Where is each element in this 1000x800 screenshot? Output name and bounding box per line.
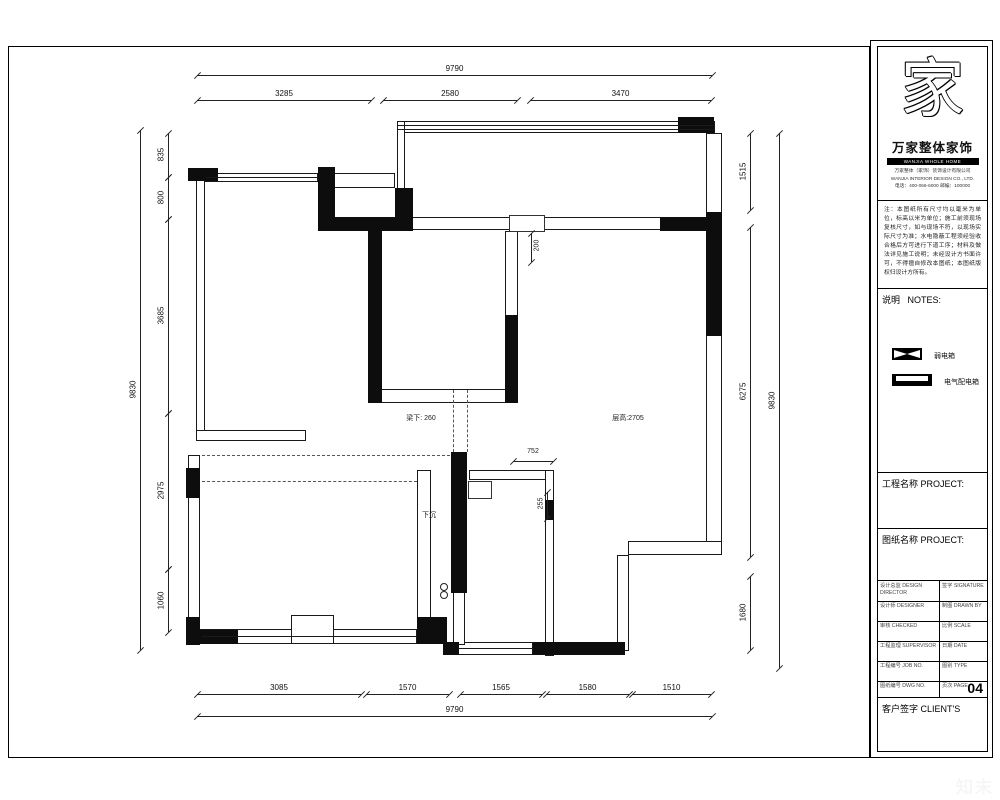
table-row: 设计总监 DESIGN DIRECTOR签字 SIGNATURE [878,581,987,602]
dimension-line [168,413,169,569]
dimension-label: 1680 [739,583,748,643]
wall [453,590,465,645]
window-line [398,125,713,126]
table-cell: 图别 TYPE [940,661,987,681]
wall [196,430,306,441]
page-label: 页次 PAGE [942,683,968,689]
company-brand-en: WANJIA WHOLE HOME FURNISHING [887,158,979,165]
client-label-cn: 客户签字 [882,704,918,714]
dimension-label: 1565 [471,683,531,692]
watermark: 知末 [956,773,994,798]
plan-annotation-dim-752: 752 [493,448,573,455]
dimension-line [140,130,141,650]
plan-annotation-dim-255: 255 [538,464,545,544]
table-row: 工程监理 SUPERVISOR日期 DATE [878,641,987,662]
dimension-line [168,177,169,219]
dimension-label: 1060 [157,570,166,630]
dimension-line [197,75,712,76]
dimension-label: 3685 [157,286,166,346]
wall [628,541,722,555]
dimension-label: 6275 [739,362,748,422]
title-table: 设计总监 DESIGN DIRECTOR签字 SIGNATURE 设计师 DES… [878,581,987,698]
dimension-line [168,219,169,413]
wall-solid [706,212,722,336]
table-cell: 设计师 DESIGNER [878,601,940,621]
drawing-sheet: 9790328525803470983083580036852975106098… [0,0,1000,800]
dimension-label: 1570 [378,683,438,692]
wall-solid [395,188,413,231]
dimension-label: 2975 [157,461,166,521]
dimension-line [383,100,517,101]
floor-plan: 9790328525803470983083580036852975106098… [0,0,870,758]
table-row: 图纸编号 DWG NO. 页次 PAGE 04 [878,681,987,698]
plan-annotation-dim-200: 200 [534,206,541,286]
wall-solid [318,167,335,231]
table-row: 工程编号 JOB NO.图别 TYPE [878,661,987,682]
dimension-line [779,133,780,668]
plan-annotation-beam-height: 梁下: 260 [381,413,461,423]
window-line [202,636,416,637]
window-line [458,648,532,649]
dimension-line [197,716,712,717]
window-line [206,177,317,178]
table-row: 审核 CHECKED比例 SCALE [878,621,987,642]
company-phone-line: 电话：400-066-6000 邮编：100000 [881,183,985,190]
notes-header-en: NOTES: [908,295,942,305]
door-hardware-symbol [440,583,448,591]
dimension-label: 3085 [249,683,309,692]
table-cell: 页次 PAGE 04 [940,681,987,698]
client-label-en: CLIENT'S [921,704,961,714]
wall-solid [186,617,200,645]
table-cell: 日期 DATE [940,641,987,661]
project-name-section: 工程名称 PROJECT: [878,473,987,529]
legend-label: 弱电箱 [934,351,955,361]
company-address-line: 万家整体（家饰）装饰设计有限公司 [881,168,985,175]
legend-item: 电气配电箱 [892,373,979,391]
client-signature-section: 客户签字 CLIENT'S [878,698,987,751]
dimension-label: 1510 [642,683,702,692]
table-cell: 图纸编号 DWG NO. [878,681,940,698]
beam-dashed-line [467,390,468,452]
legend-item: 弱电箱 [892,347,955,365]
title-block-inner: 家 万家整体家饰 WANJIA WHOLE HOME FURNISHING 万家… [877,46,988,752]
dimension-line [632,694,711,695]
beam-dashed-line [202,481,417,482]
dimension-line [513,461,553,462]
company-brand-name: 万家整体家饰 [878,137,987,156]
notes-header-cn: 说明 [882,295,900,305]
dimension-line [547,492,548,518]
fixture-outline [468,481,492,499]
power-distribution-box-icon [892,373,932,391]
dimension-label: 9790 [425,64,485,73]
wall-solid [417,617,447,644]
dimension-label: 9790 [425,705,485,714]
project-label-en: PROJECT: [921,479,965,489]
wall [397,121,714,133]
door-hardware-symbol [440,591,448,599]
dimension-line [531,233,532,262]
dimension-line [197,694,361,695]
wall-solid [505,315,518,403]
window-line [398,129,713,130]
legend-label: 电气配电箱 [944,377,979,387]
wall [196,173,205,441]
table-cell: 审核 CHECKED [878,621,940,641]
drawing-label-cn: 图纸名称 [882,535,918,545]
table-cell: 工程编号 JOB NO. [878,661,940,681]
dimension-line [460,694,542,695]
company-logo-glyph: 家 [878,47,987,135]
wall-solid [335,217,404,231]
wall-solid [368,231,382,403]
dimension-line [168,569,169,632]
dimension-line [750,227,751,557]
legend-section: 说明 NOTES: 弱电箱 电气配电箱 [878,289,987,473]
dimension-label: 800 [157,168,166,228]
dimension-line [366,694,449,695]
drawing-name-section: 图纸名称 PROJECT: [878,529,987,581]
notes-paragraph: 注：本图纸所有尺寸均以毫米为单位，标高以米为单位；施工前须现场复核尺寸，如与现场… [878,201,987,289]
table-cell: 比例 SCALE [940,621,987,641]
page-number: 04 [967,681,983,697]
wall-solid [451,452,467,593]
dimension-line [750,576,751,650]
company-logo-section: 家 万家整体家饰 WANJIA WHOLE HOME FURNISHING 万家… [878,47,987,201]
dimension-label: 2580 [420,89,480,98]
dimension-line [168,133,169,177]
plan-annotation-sunken-area: 下沉 [389,510,469,520]
wall-solid [545,642,625,655]
dimension-line [546,694,629,695]
plan-annotation-ceiling-height: 层高:2705 [588,413,668,423]
wall [334,173,395,188]
wall [291,615,334,644]
dimension-line [197,100,371,101]
wall [617,555,629,651]
project-label-cn: 工程名称 [882,479,918,489]
table-cell: 工程监理 SUPERVISOR [878,641,940,661]
drawing-label-en: PROJECT: [921,535,965,545]
dimension-label: 1515 [739,141,748,201]
dimension-label: 9830 [768,370,777,430]
table-cell: 设计总监 DESIGN DIRECTOR [878,581,940,601]
wall-solid [186,468,200,498]
wall [368,389,518,403]
notes-header: 说明 NOTES: [878,289,987,310]
dimension-label: 1580 [558,683,618,692]
wall [417,470,431,620]
wall-solid [188,168,218,181]
wall [397,121,405,189]
dimension-label: 3470 [591,89,651,98]
weak-current-box-icon [892,347,922,365]
dimension-label: 3285 [254,89,314,98]
dimension-line [750,133,751,210]
table-cell: 制图 DRAWN BY [940,601,987,621]
beam-dashed-line [202,455,450,456]
wall-solid [443,642,459,655]
table-row: 设计师 DESIGNER制图 DRAWN BY [878,601,987,622]
dimension-line [530,100,711,101]
wall-solid [200,630,238,644]
company-address-line: WANJIA INTERIOR DESIGN CO., LTD. [881,176,985,183]
wall [706,133,722,555]
table-cell: 签字 SIGNATURE [940,581,987,601]
dimension-label: 9830 [129,360,138,420]
